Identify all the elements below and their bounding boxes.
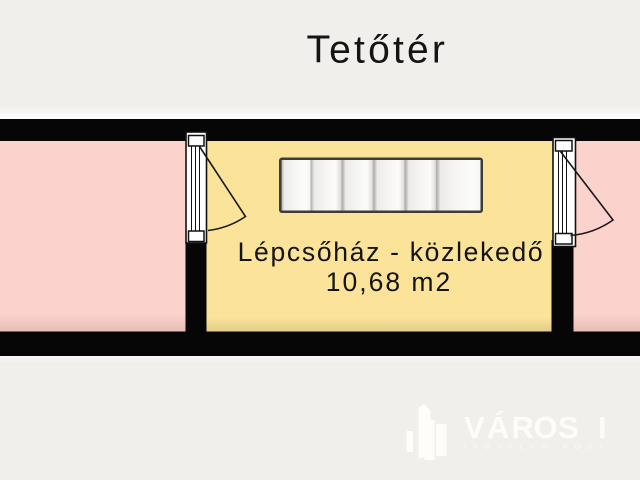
svg-text:V: V: [464, 410, 485, 445]
svg-text:S: S: [558, 410, 579, 445]
svg-text:R: R: [512, 410, 534, 445]
svg-text:Lépcsőház - közlekedő: Lépcsőház - közlekedő: [238, 237, 545, 267]
svg-text:INGATLANIRODA: INGATLANIRODA: [464, 442, 611, 451]
svg-text:10,68 m2: 10,68 m2: [326, 267, 453, 297]
svg-text:I: I: [598, 410, 607, 445]
svg-text:Á: Á: [487, 410, 509, 445]
svg-text:Tetőtér: Tetőtér: [306, 29, 448, 72]
svg-text:O: O: [534, 410, 558, 445]
